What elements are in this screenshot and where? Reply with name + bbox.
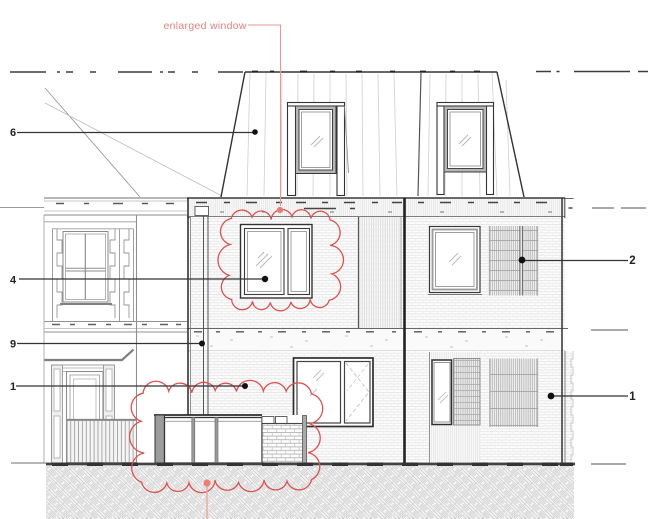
svg-text:1: 1: [629, 391, 636, 403]
svg-text:1: 1: [10, 381, 16, 393]
svg-text:6: 6: [10, 127, 16, 139]
svg-text:9: 9: [10, 339, 16, 351]
svg-text:enlarged window: enlarged window: [164, 20, 247, 32]
svg-text:2: 2: [629, 255, 635, 267]
svg-text:4: 4: [10, 275, 17, 287]
